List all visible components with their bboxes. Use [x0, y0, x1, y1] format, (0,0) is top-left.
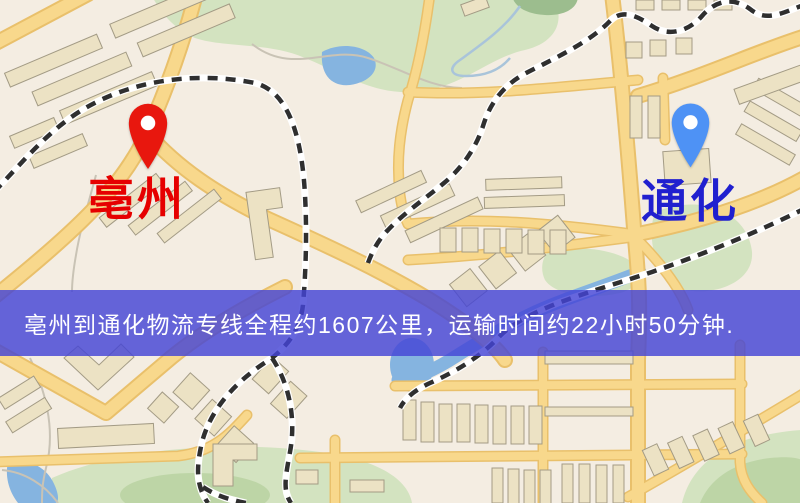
destination-label: 通化	[641, 179, 739, 225]
route-banner-text: 亳州到通化物流专线全程约1607公里，运输时间约22小时50分钟.	[24, 306, 734, 340]
destination-pin-shape	[672, 104, 710, 168]
map-canvas	[0, 0, 800, 503]
destination-pin-hole	[683, 115, 697, 129]
origin-pin[interactable]	[125, 102, 171, 170]
origin-pin-hole	[141, 116, 156, 131]
origin-pin-shape	[129, 104, 167, 169]
map-screenshot: 亳州 通化 亳州到通化物流专线全程约1607公里，运输时间约22小时50分钟.	[0, 0, 800, 503]
route-banner: 亳州到通化物流专线全程约1607公里，运输时间约22小时50分钟.	[0, 290, 800, 356]
destination-pin[interactable]	[668, 101, 713, 169]
origin-label: 亳州	[88, 177, 186, 223]
